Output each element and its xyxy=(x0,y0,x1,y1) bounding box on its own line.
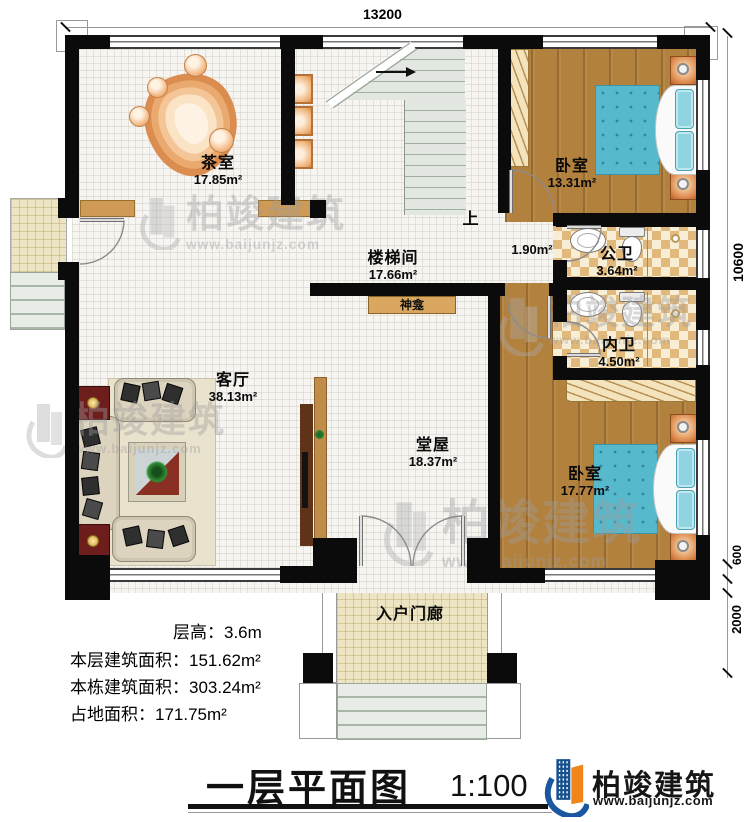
entry-porch-floor xyxy=(337,583,487,683)
wall xyxy=(498,49,511,213)
watermark: 柏竣建筑www.baijunjz.com xyxy=(497,296,693,356)
watermark: 柏竣建筑www.baijunjz.com xyxy=(378,500,642,572)
dimension-porch-step: 600 xyxy=(730,545,744,565)
room-label-bedroom-2: 卧室17.77m² xyxy=(561,466,609,498)
wall xyxy=(310,283,505,296)
window xyxy=(110,568,280,582)
room-label-bedroom-1: 卧室13.31m² xyxy=(548,158,596,190)
wall xyxy=(655,560,710,600)
dimension-porch-depth: 2000 xyxy=(729,605,744,634)
wardrobe xyxy=(566,378,696,402)
room-label-tea-room: 茶室17.85m² xyxy=(194,155,242,187)
tea-stool xyxy=(209,128,234,153)
title-underline xyxy=(188,804,548,809)
wall xyxy=(556,277,710,290)
bed-pillow xyxy=(675,131,694,171)
bed-pillow xyxy=(676,448,695,488)
wall xyxy=(556,213,710,227)
room-label-main-hall: 堂屋18.37m² xyxy=(409,437,457,469)
watermark-url: www.baijunjz.com xyxy=(74,441,226,456)
room-label-vestibule-area: 1.90m² xyxy=(511,243,552,258)
stairs-lower-flight xyxy=(404,100,466,215)
sofa-cushion xyxy=(81,476,100,496)
stairs-up-label: 上 xyxy=(462,211,479,229)
room-label-living-room: 客厅38.13m² xyxy=(209,372,257,404)
dimension-line-top xyxy=(65,27,711,28)
wall xyxy=(553,290,567,322)
wall xyxy=(553,213,567,226)
info-floor-height: 层高：3.6m xyxy=(173,618,262,643)
shower-partition xyxy=(647,228,648,276)
sofa-cushion xyxy=(146,529,165,549)
left-steps xyxy=(10,272,65,330)
watermark-text: 柏竣建筑 xyxy=(549,296,693,330)
wall xyxy=(463,35,543,49)
door-jamb xyxy=(58,262,79,280)
door-jamb xyxy=(313,538,357,583)
nightstand xyxy=(670,414,698,443)
nightstand xyxy=(670,171,698,200)
window xyxy=(696,330,710,365)
tea-stool xyxy=(184,54,207,77)
info-footprint-area: 占地面积：171.75m² xyxy=(70,700,227,725)
watermark-text: 柏竣建筑 xyxy=(74,402,226,438)
side-table xyxy=(76,524,110,558)
nightstand xyxy=(670,56,698,85)
window xyxy=(110,35,280,49)
porch-column-base xyxy=(483,683,521,739)
sideboard xyxy=(80,200,135,217)
bed-pillow xyxy=(676,490,695,530)
dimension-height: 10600 xyxy=(730,243,746,282)
floor-drain xyxy=(671,234,680,243)
company-logo-icon xyxy=(543,757,589,817)
company-website: www.baijunjz.com xyxy=(593,793,713,808)
wall xyxy=(65,35,79,218)
porch-column xyxy=(303,653,333,683)
window xyxy=(323,35,463,49)
shrine: 神龛 xyxy=(368,296,456,314)
watermark-logo-icon xyxy=(378,500,436,566)
wall xyxy=(488,283,500,568)
room-label-public-bath: 公卫3.64m² xyxy=(596,246,637,278)
window xyxy=(696,80,710,170)
window xyxy=(696,440,710,535)
sofa-cushion xyxy=(122,525,142,546)
wall xyxy=(280,566,313,583)
wall xyxy=(494,568,545,583)
shrine-label: 神龛 xyxy=(400,298,424,312)
nightstand xyxy=(670,533,698,562)
dimension-width: 13200 xyxy=(363,6,402,22)
title-underline-thin xyxy=(188,812,552,813)
watermark-logo-icon xyxy=(138,196,180,250)
bed-mattress xyxy=(595,85,660,175)
room-label-entry-porch: 入户门廊 xyxy=(376,606,444,624)
wall xyxy=(310,200,326,218)
porch-steps xyxy=(337,683,487,740)
tv-screen xyxy=(302,452,308,508)
watermark-url: www.baijunjz.com xyxy=(186,237,346,252)
wall xyxy=(65,266,79,600)
dimension-line-right xyxy=(727,36,728,596)
window xyxy=(545,568,655,582)
wall xyxy=(696,35,710,80)
window xyxy=(696,230,710,278)
plant xyxy=(146,461,168,483)
bed-pillow xyxy=(675,89,694,129)
window xyxy=(543,35,657,49)
floor-plan: 柏竣建筑www.baijunjz.com 柏竣建筑www.baijunjz.co… xyxy=(0,0,750,822)
door-jamb xyxy=(58,198,79,218)
drawing-scale: 1:100 xyxy=(450,768,528,804)
tea-stool xyxy=(129,106,150,127)
wall xyxy=(280,35,323,49)
room-label-private-bath: 内卫4.50m² xyxy=(598,337,639,369)
porch-column-base xyxy=(299,683,337,739)
room-label-stairwell: 楼梯间17.66m² xyxy=(367,250,418,282)
dimension-line-porch xyxy=(727,568,728,678)
watermark-logo-icon xyxy=(497,296,543,356)
watermark: 柏竣建筑www.baijunjz.com xyxy=(24,402,226,458)
plant xyxy=(315,430,324,439)
tv-feature-wall xyxy=(314,377,327,545)
wall xyxy=(553,368,710,380)
wall xyxy=(65,555,110,600)
porch-column xyxy=(487,653,517,683)
wall xyxy=(281,49,295,205)
tea-stool xyxy=(147,77,168,98)
info-floor-area: 本层建筑面积：151.62m² xyxy=(70,646,261,671)
watermark-logo-icon xyxy=(24,402,68,458)
info-building-area: 本栋建筑面积：303.24m² xyxy=(70,673,261,698)
